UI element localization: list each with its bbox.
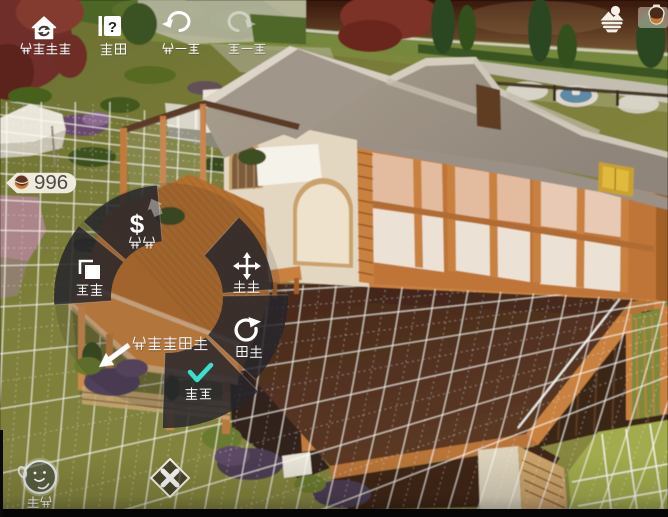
svg-text:996: 996 (34, 171, 68, 194)
svg-text:$: $ (130, 209, 145, 239)
svg-text:?: ? (108, 19, 117, 36)
